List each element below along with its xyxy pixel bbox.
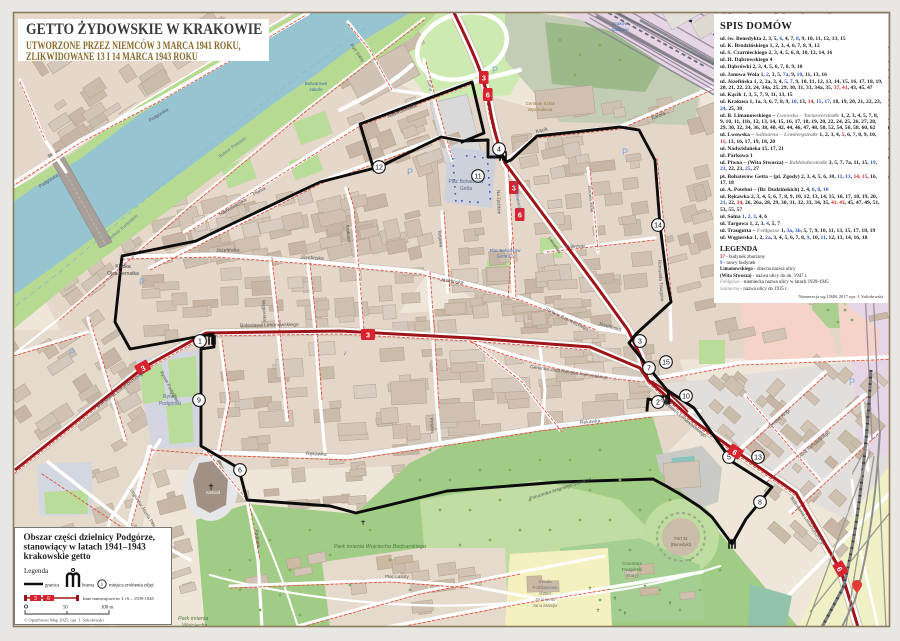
svg-text:100 m: 100 m bbox=[101, 606, 113, 611]
svg-text:29 imienia: 29 imienia bbox=[535, 597, 556, 602]
svg-text:Podgórski: Podgórski bbox=[622, 567, 642, 572]
svg-text:Getta: Getta bbox=[460, 186, 472, 192]
svg-text:15: 15 bbox=[662, 360, 670, 367]
svg-text:Ojca Bernatka: Ojca Bernatka bbox=[107, 271, 139, 277]
svg-text:✝: ✝ bbox=[588, 586, 592, 592]
svg-text:brama: brama bbox=[82, 583, 95, 588]
svg-text:Bulwarowe: Bulwarowe bbox=[305, 81, 328, 86]
svg-text:3: 3 bbox=[638, 339, 642, 346]
svg-text:Kładka: Kładka bbox=[115, 264, 131, 270]
svg-text:Rynek: Rynek bbox=[163, 394, 178, 400]
svg-text:9: 9 bbox=[197, 398, 201, 405]
svg-text:Bolesława Limanowskiego: Bolesława Limanowskiego bbox=[240, 322, 299, 329]
svg-text:P: P bbox=[407, 167, 413, 177]
svg-text:Plac Lasoty: Plac Lasoty bbox=[385, 574, 409, 579]
svg-text:P: P bbox=[139, 277, 145, 287]
svg-text:Park imienia Wojciecha Bednars: Park imienia Wojciecha Bednarskiego bbox=[334, 544, 426, 550]
svg-text:7: 7 bbox=[647, 366, 651, 373]
svg-text:Podgórski: Podgórski bbox=[159, 401, 181, 407]
svg-text:5: 5 bbox=[727, 455, 731, 462]
svg-text:✝: ✝ bbox=[360, 519, 366, 527]
svg-text:(stary): (stary) bbox=[625, 573, 638, 578]
svg-text:Dąbrówki: Dąbrówki bbox=[566, 244, 585, 249]
svg-text:Legenda: Legenda bbox=[24, 567, 49, 575]
svg-text:✝: ✝ bbox=[623, 611, 627, 617]
svg-text:numer: numer bbox=[539, 591, 552, 596]
svg-text:zakole: zakole bbox=[309, 87, 323, 92]
svg-text:14: 14 bbox=[654, 223, 662, 230]
svg-text:Centrum Szkuł: Centrum Szkuł bbox=[526, 101, 555, 106]
svg-text:P: P bbox=[622, 147, 628, 157]
svg-text:1: 1 bbox=[198, 339, 202, 346]
svg-text:10: 10 bbox=[682, 394, 690, 401]
svg-text:Wyszkolenia: Wyszkolenia bbox=[528, 107, 553, 112]
svg-text:© OpenStreet Map 2025, opr. J.: © OpenStreet Map 2025, opr. J. Sokołowsk… bbox=[24, 618, 105, 624]
svg-text:✝: ✝ bbox=[668, 601, 672, 607]
svg-text:Jana Matejki: Jana Matejki bbox=[533, 603, 558, 608]
svg-text:Kraków: Kraków bbox=[612, 21, 628, 26]
svg-text:4: 4 bbox=[497, 147, 501, 154]
svg-text:Cmentarz: Cmentarz bbox=[622, 561, 643, 566]
svg-text:6: 6 bbox=[486, 91, 490, 100]
svg-text:6: 6 bbox=[47, 596, 50, 602]
svg-text:krakowskie getto: krakowskie getto bbox=[24, 551, 92, 561]
svg-text:P: P bbox=[849, 377, 855, 387]
svg-text:granica: granica bbox=[45, 583, 60, 588]
svg-text:3: 3 bbox=[482, 74, 486, 83]
svg-text:50: 50 bbox=[63, 606, 68, 611]
svg-text:8: 8 bbox=[758, 500, 762, 507]
svg-text:Rękawka: Rękawka bbox=[306, 451, 327, 458]
svg-text:Na Zjeździe: Na Zjeździe bbox=[496, 190, 502, 215]
svg-text:P: P bbox=[69, 347, 75, 357]
svg-text:Józefińska: Józefińska bbox=[216, 248, 240, 254]
svg-text:✝: ✝ bbox=[596, 608, 600, 614]
svg-text:6: 6 bbox=[518, 211, 522, 220]
svg-text:13: 13 bbox=[754, 455, 762, 462]
svg-text:miejsca zrobienia zdjęć: miejsca zrobienia zdjęć bbox=[109, 583, 154, 588]
svg-text:3: 3 bbox=[34, 596, 37, 602]
svg-text:Fort 31: Fort 31 bbox=[674, 536, 688, 541]
svg-text:12: 12 bbox=[375, 165, 383, 172]
svg-text:✝: ✝ bbox=[613, 596, 617, 602]
svg-text:6: 6 bbox=[238, 468, 242, 475]
svg-text:Szkoła: Szkoła bbox=[538, 579, 552, 584]
svg-text:Józefińska: Józefińska bbox=[300, 255, 324, 262]
svg-text:✝: ✝ bbox=[643, 584, 647, 590]
svg-text:Park imienia: Park imienia bbox=[178, 616, 208, 622]
svg-text:♪: ♪ bbox=[343, 350, 347, 357]
svg-text:Zabłocie: Zabłocie bbox=[611, 27, 629, 32]
svg-text:linie tramwajowe nr 3 i 6 – 19: linie tramwajowe nr 3 i 6 – 1939-1945 bbox=[83, 596, 155, 601]
svg-text:Podstawowa: Podstawowa bbox=[533, 585, 558, 590]
svg-text:3: 3 bbox=[366, 331, 370, 340]
svg-text:P: P bbox=[492, 65, 498, 75]
svg-text:✝: ✝ bbox=[207, 482, 215, 492]
svg-text:(Benedykt): (Benedykt) bbox=[671, 542, 692, 547]
